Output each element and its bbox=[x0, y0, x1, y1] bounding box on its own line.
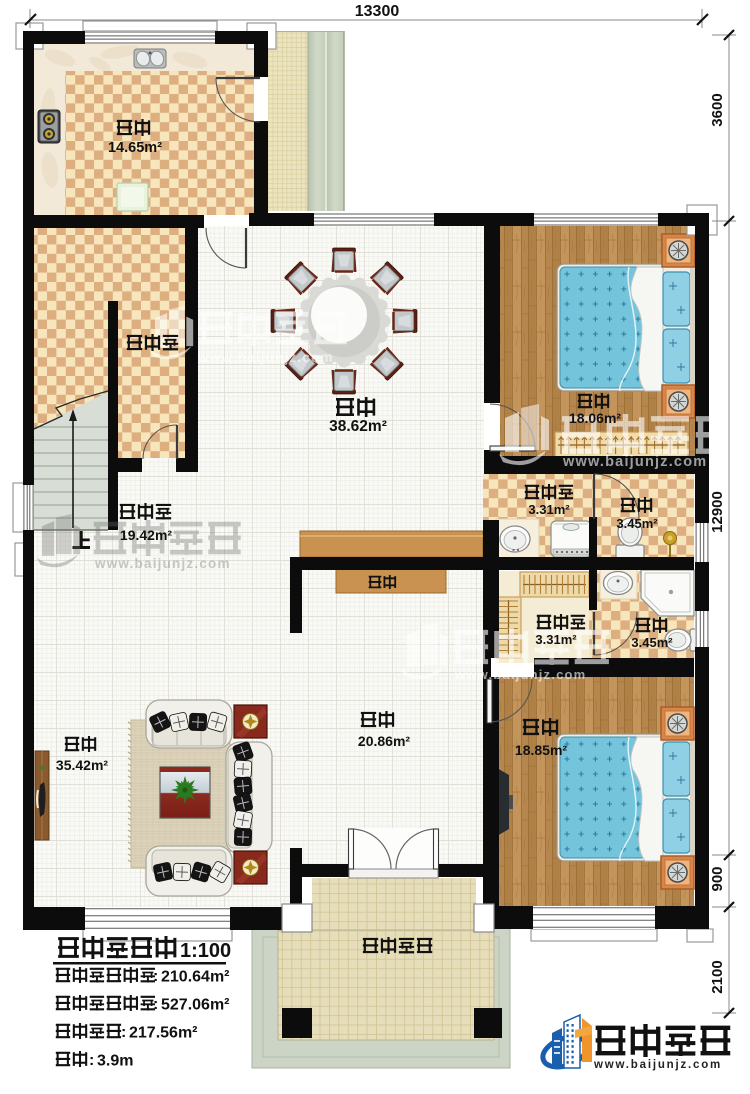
svg-text:527.06m²: 527.06m² bbox=[161, 997, 230, 1014]
svg-text:20.86m²: 20.86m² bbox=[358, 733, 410, 749]
svg-text:www.baijunjz.com: www.baijunjz.com bbox=[593, 1059, 722, 1071]
svg-text:www.baijunjz.com: www.baijunjz.com bbox=[197, 350, 334, 365]
svg-text:www.baijunjz.com: www.baijunjz.com bbox=[94, 556, 231, 571]
svg-text:210.64m²: 210.64m² bbox=[161, 969, 230, 986]
svg-text:3.31m²: 3.31m² bbox=[528, 502, 570, 517]
svg-text:2100: 2100 bbox=[709, 960, 726, 993]
svg-text:3.45m²: 3.45m² bbox=[631, 635, 673, 650]
svg-text:38.62m²: 38.62m² bbox=[329, 418, 387, 435]
svg-text:www.baijunjz.com: www.baijunjz.com bbox=[562, 454, 707, 470]
svg-text:19.42m²: 19.42m² bbox=[120, 527, 172, 543]
svg-text:900: 900 bbox=[709, 866, 726, 891]
svg-text:13300: 13300 bbox=[355, 3, 400, 20]
svg-text::: : bbox=[89, 1052, 94, 1069]
svg-text::: : bbox=[121, 1024, 126, 1041]
svg-text:14.65m²: 14.65m² bbox=[108, 140, 162, 156]
svg-text:35.42m²: 35.42m² bbox=[56, 757, 108, 773]
svg-text:18.06m²: 18.06m² bbox=[569, 410, 621, 426]
svg-text::: : bbox=[153, 968, 158, 985]
svg-text:1:100: 1:100 bbox=[180, 940, 231, 962]
svg-text:3.31m²: 3.31m² bbox=[535, 632, 577, 647]
svg-text:3.9m: 3.9m bbox=[97, 1053, 133, 1070]
svg-text:217.56m²: 217.56m² bbox=[129, 1025, 198, 1042]
svg-text:18.85m²: 18.85m² bbox=[515, 742, 567, 758]
svg-text:12900: 12900 bbox=[709, 491, 726, 533]
svg-text:3600: 3600 bbox=[709, 93, 726, 126]
svg-text:3.45m²: 3.45m² bbox=[616, 516, 658, 531]
svg-text:www.baijunjz.com: www.baijunjz.com bbox=[454, 667, 586, 682]
svg-text::: : bbox=[153, 996, 158, 1013]
